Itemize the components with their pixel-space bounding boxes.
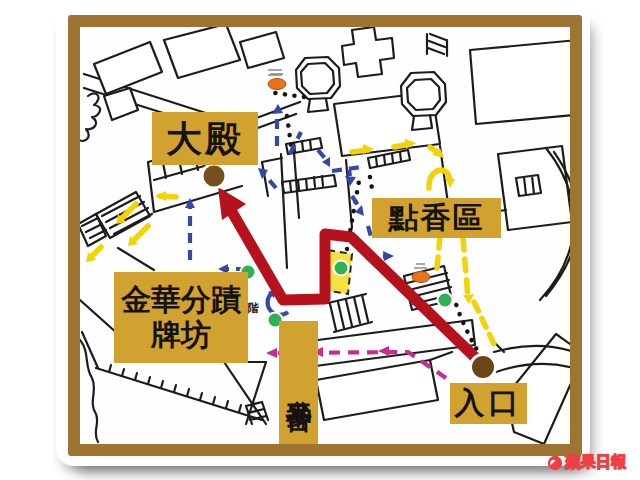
label-archway: 金華分蹟 牌坊 [114,272,248,363]
label-main-hall: 大殿 [152,112,258,165]
entrance-dot-marker [471,355,496,380]
watermark-text: 蘋果日報 [565,453,627,472]
label-archway-line1: 金華分蹟 [121,283,241,318]
label-incense-area: 點香區 [372,198,501,238]
screenshot-stage: 大殿 點香區 金華分蹟 牌坊 參神平台 入口 階 蘋果日報 [0,0,640,480]
label-main-hall-text: 大殿 [166,118,244,159]
label-worship-platform: 參神平台 [279,321,318,444]
label-archway-line2: 牌坊 [151,318,211,353]
label-incense-area-text: 點香區 [389,201,485,236]
apple-logo-icon [546,453,564,471]
label-entrance-text: 入口 [455,386,523,421]
stairs-annotation: 階 [248,301,259,316]
label-worship-platform-text: 參神平台 [284,379,314,387]
watermark: 蘋果日報 [546,452,627,472]
label-entrance: 入口 [450,383,527,424]
main-hall-dot-marker [202,164,226,188]
